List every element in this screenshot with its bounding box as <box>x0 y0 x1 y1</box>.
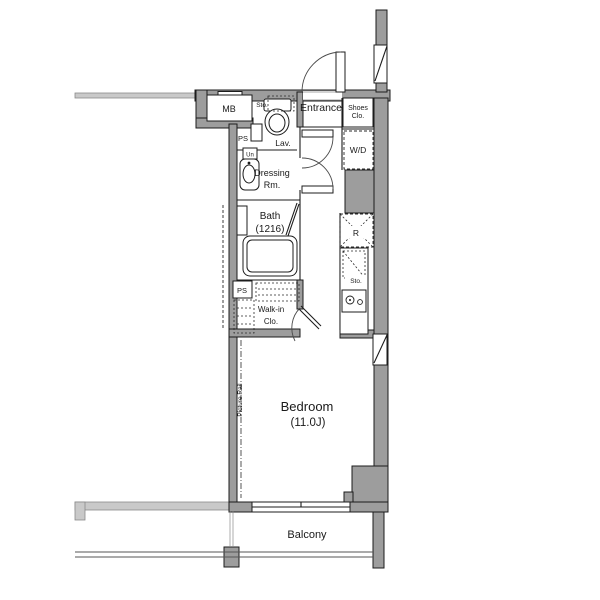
toilet-bowl-inner <box>269 114 285 132</box>
label-shoes-closet-2: Clo. <box>352 113 365 120</box>
entrance-door-leaf <box>336 52 345 92</box>
floor-plan: MB PS Sto. Lav. Un Dressing Rm. Bath (12… <box>0 0 600 600</box>
stove-icon <box>342 290 366 312</box>
bath-counter <box>237 206 247 235</box>
entrance-door <box>302 52 345 92</box>
neighbor-wall-stub <box>75 502 85 520</box>
washbasin-bowl <box>243 165 255 183</box>
label-dressing-room-1: Dressing <box>254 168 290 178</box>
wall-right-top-b <box>376 83 387 92</box>
label-bedroom-1: Bedroom <box>281 399 334 414</box>
label-bedroom-2: (11.0J) <box>291 417 326 429</box>
label-refrigerator: R <box>353 228 359 238</box>
label-dressing-room-2: Rm. <box>264 180 281 190</box>
label-lavatory: Lav. <box>275 138 290 148</box>
wall-right-top-a <box>376 10 387 45</box>
bath-door <box>286 203 299 236</box>
label-pipe-space-upper: PS <box>238 134 248 143</box>
label-toilet-storage: Sto. <box>256 102 268 109</box>
bathtub-inner <box>247 240 293 272</box>
washbasin-faucet <box>248 162 251 165</box>
wall-left <box>229 124 237 503</box>
neighbor-wall-bottom <box>75 502 229 510</box>
label-pipe-space-lower: PS <box>237 286 247 295</box>
label-picture-rail: Picture Rail <box>237 383 244 417</box>
corridor-door-lower <box>302 158 333 193</box>
label-shoes-closet-1: Shoes <box>348 105 368 112</box>
wall-walkin-bottom <box>229 329 300 337</box>
floor-plan-canvas: MB PS Sto. Lav. Un Dressing Rm. Bath (12… <box>0 0 600 600</box>
wall-walkin-right <box>297 280 303 309</box>
label-bath-2: (1216) <box>256 224 285 235</box>
label-balcony: Balcony <box>287 529 327 541</box>
wall-balcony-right <box>373 512 384 568</box>
wall-block-below-wd <box>345 170 374 213</box>
window-right-wall <box>373 334 387 365</box>
light-walls <box>75 93 229 520</box>
wall-step-a <box>352 466 388 504</box>
label-walkin-closet-2: Clo. <box>264 317 278 326</box>
bathtub-icon <box>243 236 297 276</box>
label-walkin-closet-1: Walk-in <box>258 305 284 314</box>
exterior-door-top-right <box>374 45 387 83</box>
wall-right <box>374 98 388 504</box>
entrance-door-arc <box>302 52 341 92</box>
label-washer-dryer: W/D <box>350 145 367 155</box>
label-meter-box: MB <box>222 104 236 114</box>
balcony-sliding-window <box>252 502 350 512</box>
pipe-shaft-upper-box <box>251 124 262 141</box>
hanger-rail <box>256 283 299 301</box>
neighbor-wall-top <box>75 93 195 98</box>
label-kitchen-storage: Sto. <box>350 278 362 285</box>
label-bath-1: Bath <box>260 211 281 222</box>
label-washbasin-unit: Un <box>246 153 254 159</box>
label-entrance: Entrance <box>300 102 342 114</box>
